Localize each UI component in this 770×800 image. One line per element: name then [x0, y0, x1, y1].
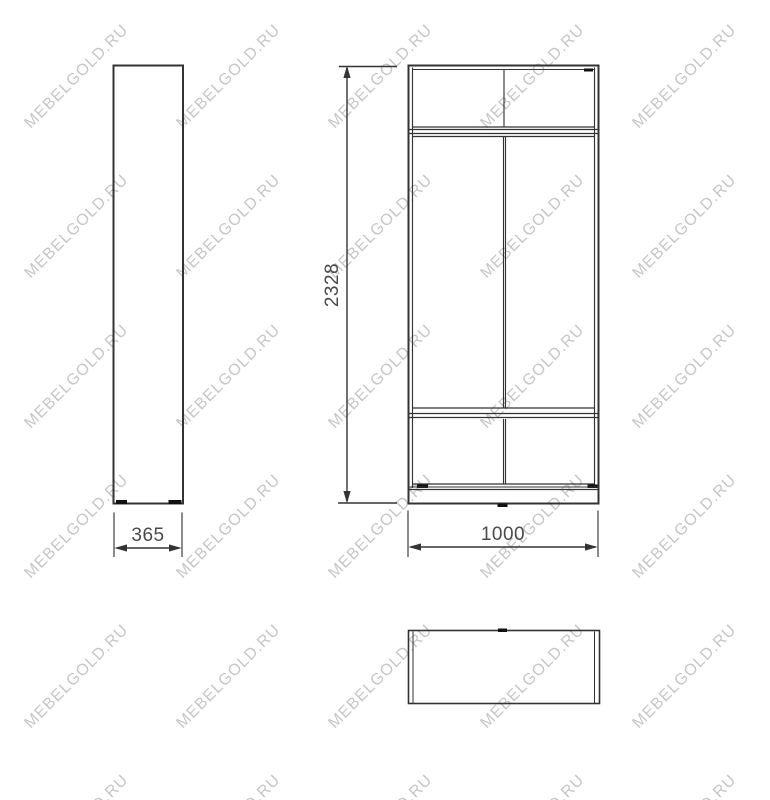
depth-arrow-right: [169, 544, 182, 551]
wardrobe-blueprint: 2328 365 1000: [0, 0, 770, 800]
dimension-width: 1000: [408, 511, 598, 558]
top-view-outline: [409, 631, 600, 704]
top-right-panel-handle: [584, 69, 593, 72]
front-view: [409, 66, 599, 508]
height-arrow-down: [343, 491, 350, 504]
side-foot-right: [169, 500, 182, 504]
depth-arrow-left: [115, 544, 128, 551]
center-foot: [498, 504, 508, 508]
height-arrow-up: [343, 66, 350, 79]
height-dimension-label: 2328: [322, 263, 343, 307]
technical-drawing-canvas: MEBELGOLD.RUMEBELGOLD.RUMEBELGOLD.RUMEBE…: [0, 0, 770, 800]
width-arrow-right: [585, 543, 598, 550]
side-foot-left: [116, 500, 127, 504]
side-panel-outline: [114, 66, 184, 504]
depth-dimension-label: 365: [131, 525, 164, 546]
dimension-height: 2328: [322, 66, 397, 504]
dimension-depth: 365: [114, 513, 182, 558]
side-view: [114, 66, 184, 505]
width-arrow-left: [409, 543, 422, 550]
top-view-center-mark: [498, 629, 507, 633]
top-view: [409, 629, 600, 704]
width-dimension-label: 1000: [481, 524, 525, 545]
